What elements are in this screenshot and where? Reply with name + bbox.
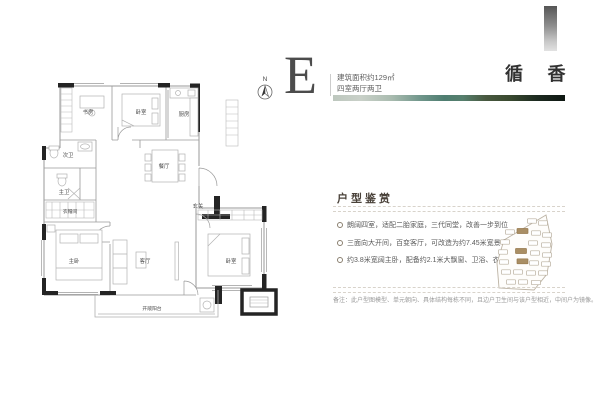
dashed-divider-bottom bbox=[333, 287, 565, 293]
unit-layout: 四室两厅两卫 bbox=[337, 84, 395, 95]
section-title: 户型鉴赏 bbox=[337, 190, 393, 206]
room-label-kitchen: 厨房 bbox=[179, 110, 190, 118]
unit-area: 建筑面积约129㎡ bbox=[337, 73, 395, 84]
room-label-bedroom-top: 卧室 bbox=[136, 108, 147, 116]
feature-item: 三面向大开间，百变客厅，可改造为约7.45米宽景客厅 bbox=[337, 239, 487, 248]
room-label-closet: 衣帽间 bbox=[63, 208, 78, 215]
room-label-balcony: 开敞阳台 bbox=[142, 305, 161, 312]
feature-item: 朗阔四室，适配二胎家庭，三代同堂，改善一步到位 bbox=[337, 221, 487, 230]
feature-list: 朗阔四室，适配二胎家庭，三代同堂，改善一步到位 三面向大开间，百变客厅，可改造为… bbox=[337, 221, 487, 274]
room-label-bath-master: 主卫 bbox=[59, 188, 70, 196]
room-label-bedroom-south: 卧室 bbox=[226, 257, 237, 265]
landscape-photo-strip bbox=[333, 95, 565, 101]
room-label-foyer: 玄关 bbox=[193, 202, 204, 210]
elevator-core bbox=[242, 290, 276, 314]
brochure-page: N 书房 卧室 厨房 次卫 主卫 衣帽间 主卧 客厅 餐厅 玄关 卧室 开敞阳台… bbox=[0, 0, 600, 400]
bullet-ring-icon bbox=[337, 240, 343, 246]
feature-item: 约3.8米宽阔主卧，配备约2.1米大飘窗、卫浴、衣帽间 bbox=[337, 256, 487, 265]
brand-title: 循 香 bbox=[505, 60, 567, 86]
spec-divider bbox=[330, 74, 331, 96]
unit-specs: 建筑面积约129㎡ 四室两厅两卫 bbox=[337, 73, 395, 95]
room-label-bath-second: 次卫 bbox=[63, 151, 74, 159]
compass-n-label: N bbox=[263, 76, 268, 83]
bullet-ring-icon bbox=[337, 257, 343, 263]
room-label-study: 书房 bbox=[83, 108, 94, 116]
disclaimer-note: 备注：此户型图模型、单元朝向、具体结构每栋不同，且边户卫生间与该户型相近，中间户… bbox=[333, 295, 565, 304]
bullet-ring-icon bbox=[337, 222, 343, 228]
floor-plan: N 书房 卧室 厨房 次卫 主卫 衣帽间 主卧 客厅 餐厅 玄关 卧室 开敞阳台 bbox=[28, 74, 298, 326]
site-plan bbox=[490, 210, 560, 294]
room-label-dining: 餐厅 bbox=[159, 162, 170, 170]
feature-text: 朗阔四室，适配二胎家庭，三代同堂，改善一步到位 bbox=[347, 221, 508, 230]
room-label-living: 客厅 bbox=[140, 257, 151, 265]
feature-text: 约3.8米宽阔主卧，配备约2.1米大飘窗、卫浴、衣帽间 bbox=[347, 256, 513, 265]
room-label-bedroom-master: 主卧 bbox=[69, 257, 80, 265]
decorative-gradient-bar bbox=[544, 6, 557, 51]
north-compass-icon: N bbox=[258, 76, 272, 99]
unit-letter: E bbox=[284, 48, 317, 102]
